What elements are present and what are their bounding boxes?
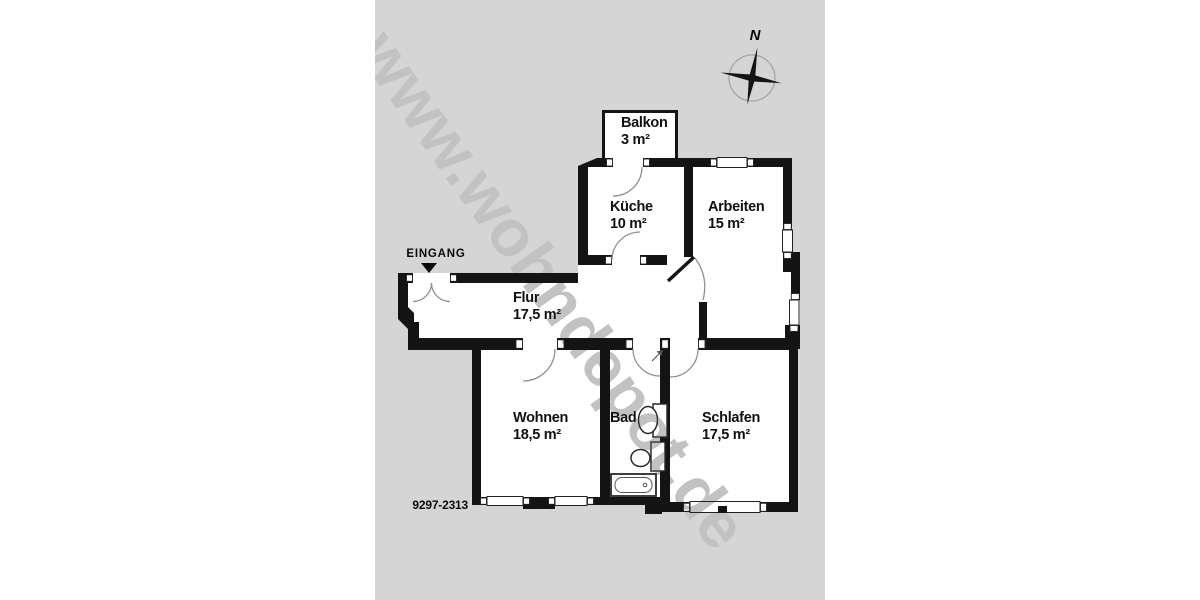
room-area: 17,5 m²: [513, 307, 561, 324]
room-label-arbeiten: Arbeiten 15 m²: [708, 199, 764, 232]
room-area: 10 m²: [610, 216, 653, 233]
room-name: Flur: [513, 290, 561, 307]
room-name: Wohnen: [513, 410, 568, 427]
room-area: 3 m²: [621, 132, 668, 149]
room-label-wohnen: Wohnen 18,5 m²: [513, 410, 568, 443]
room-label-schlafen: Schlafen 17,5 m²: [702, 410, 760, 443]
room-area: 17,5 m²: [702, 427, 760, 444]
room-name: Bad: [610, 410, 637, 427]
page-background: { "watermark_text": "www.wohndepot.de", …: [0, 0, 1200, 600]
room-area: 18,5 m²: [513, 427, 568, 444]
plan-canvas: N Balkon 3 m² Küche 10 m² Arbeiten 15 m²…: [375, 0, 825, 600]
room-label-balkon: Balkon 3 m²: [621, 115, 668, 148]
entrance-arrow-icon: [421, 263, 437, 273]
room-name: Schlafen: [702, 410, 760, 427]
plan-number: 9297-2313: [406, 498, 468, 512]
room-name: Arbeiten: [708, 199, 764, 216]
room-name: Küche: [610, 199, 653, 216]
room-label-flur: Flur 17,5 m²: [513, 290, 561, 323]
room-label-kueche: Küche 10 m²: [610, 199, 653, 232]
compass-north-label: N: [746, 27, 764, 44]
label-layer: N Balkon 3 m² Küche 10 m² Arbeiten 15 m²…: [375, 0, 825, 600]
room-name: Balkon: [621, 115, 668, 132]
entrance-label: EINGANG: [395, 248, 477, 260]
room-label-bad: Bad: [610, 410, 637, 427]
room-area: 15 m²: [708, 216, 764, 233]
